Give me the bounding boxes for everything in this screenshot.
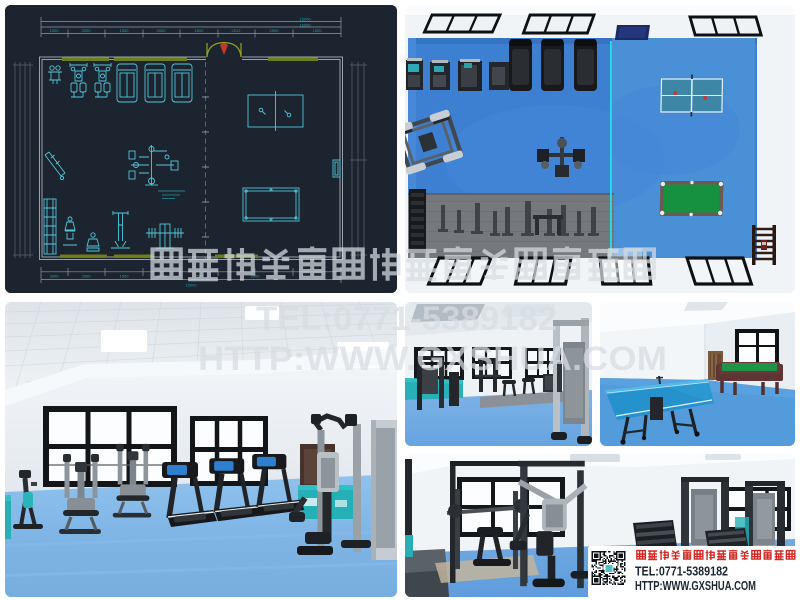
svg-text:1500: 1500: [313, 28, 323, 33]
svg-text:2500: 2500: [82, 28, 92, 33]
svg-text:HTTP:WWW.GXSHUA.COM: HTTP:WWW.GXSHUA.COM: [635, 579, 756, 593]
svg-text:15000: 15000: [299, 23, 311, 28]
svg-text:15000: 15000: [299, 17, 311, 22]
svg-text:3000: 3000: [251, 274, 261, 279]
svg-text:TEL:0771-5389182: TEL:0771-5389182: [635, 565, 728, 579]
svg-text:2500: 2500: [195, 274, 205, 279]
svg-text:2000: 2000: [157, 274, 167, 279]
svg-text:2500: 2500: [270, 28, 280, 33]
svg-text:1500: 1500: [50, 28, 60, 33]
svg-text:2500: 2500: [157, 28, 167, 33]
svg-text:1500: 1500: [120, 28, 130, 33]
svg-text:1500: 1500: [120, 274, 130, 279]
svg-text:3000: 3000: [50, 274, 60, 279]
svg-text:2512: 2512: [232, 28, 242, 33]
svg-text:15000: 15000: [185, 283, 197, 288]
svg-text:1500: 1500: [195, 28, 205, 33]
svg-text:2500: 2500: [82, 274, 92, 279]
